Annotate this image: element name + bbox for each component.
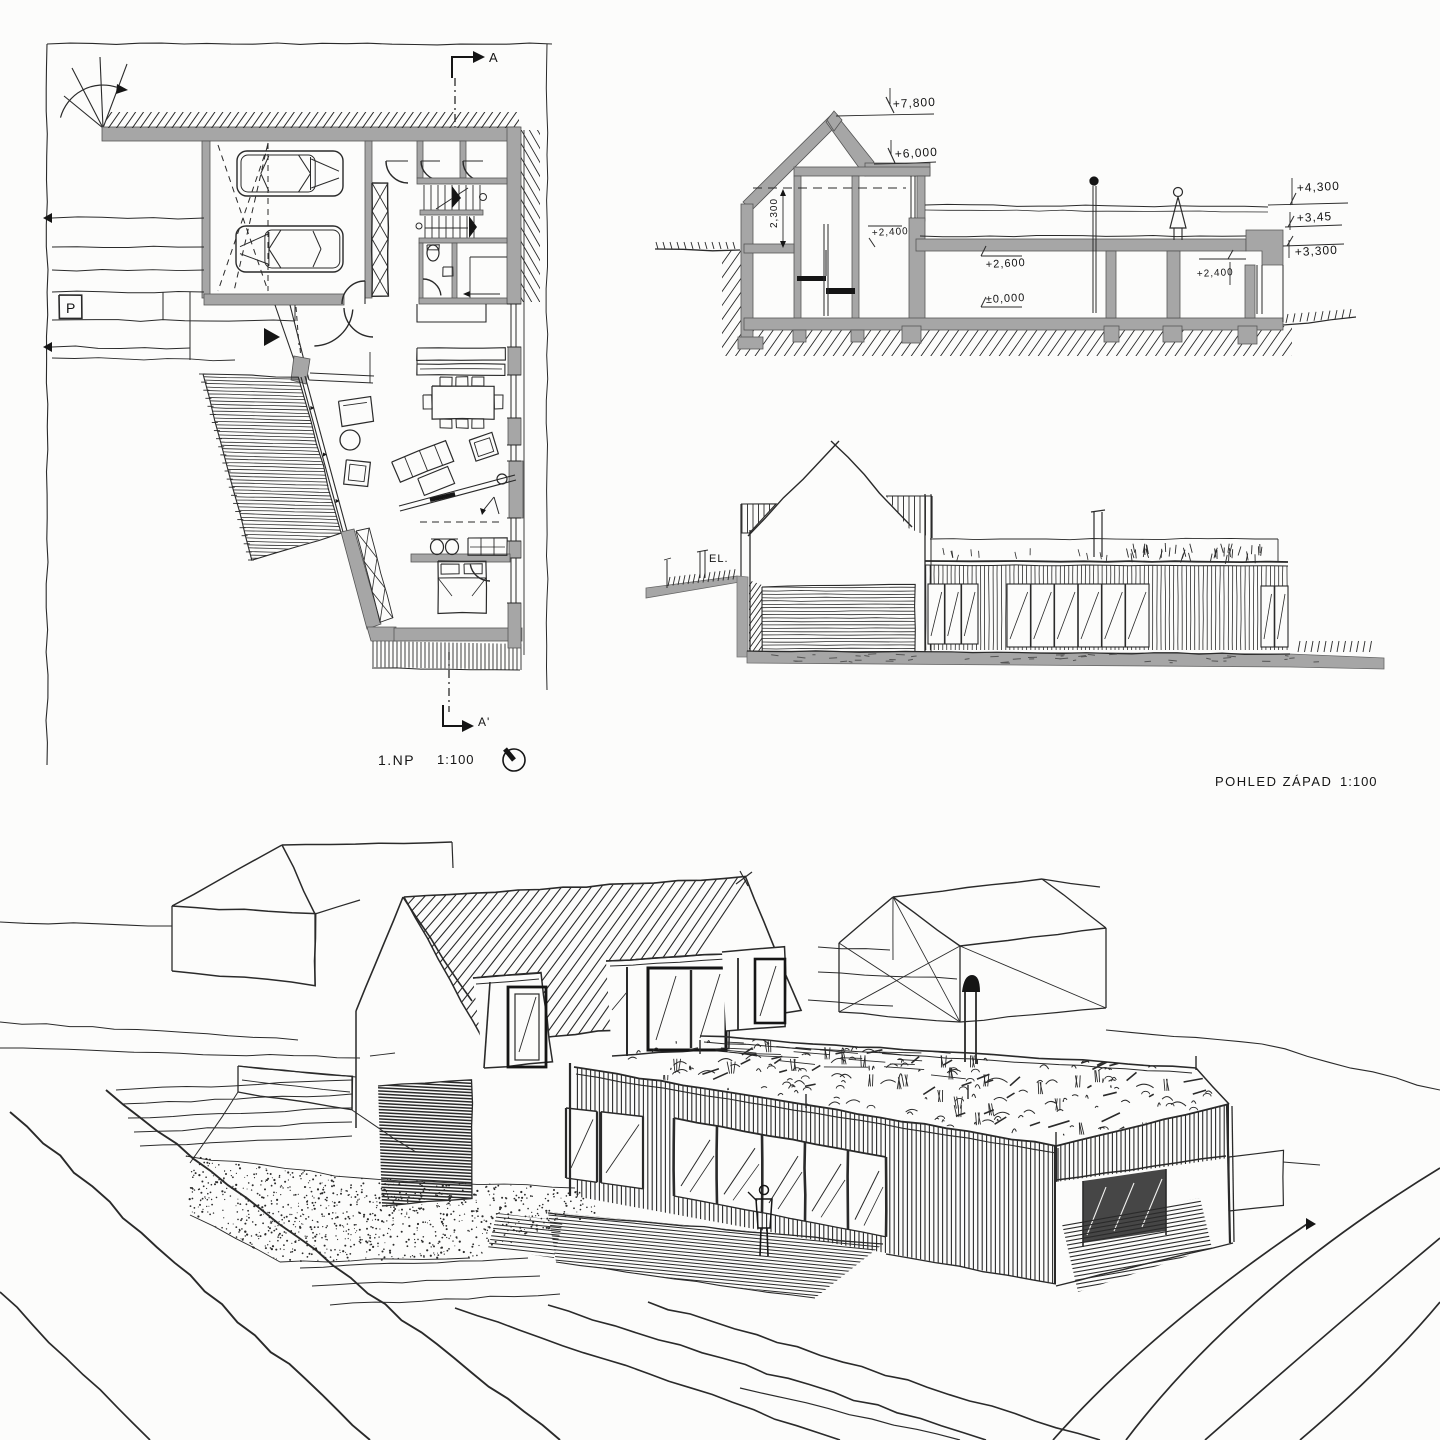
- svg-text:A: A: [489, 50, 499, 65]
- svg-text:+3,45: +3,45: [1296, 209, 1332, 225]
- svg-text:+3,300: +3,300: [1294, 243, 1338, 259]
- svg-text:2,300: 2,300: [769, 198, 780, 228]
- svg-text:+6,000: +6,000: [894, 145, 938, 161]
- svg-text:A': A': [478, 715, 490, 729]
- svg-text:+4,300: +4,300: [1296, 179, 1340, 195]
- svg-text:1.NP: 1.NP: [378, 752, 415, 768]
- svg-text:1:100: 1:100: [1340, 774, 1378, 789]
- svg-text:EL.: EL.: [709, 553, 729, 565]
- svg-text:+2,400: +2,400: [872, 226, 909, 239]
- svg-text:+7,800: +7,800: [892, 95, 936, 111]
- svg-text:±0,000: ±0,000: [986, 292, 1026, 306]
- svg-text:+2,400: +2,400: [1197, 267, 1234, 280]
- svg-text:+2,600: +2,600: [986, 257, 1027, 271]
- svg-text:1:100: 1:100: [437, 752, 475, 767]
- svg-text:P: P: [66, 300, 76, 316]
- svg-text:POHLED ZÁPAD: POHLED ZÁPAD: [1215, 774, 1332, 789]
